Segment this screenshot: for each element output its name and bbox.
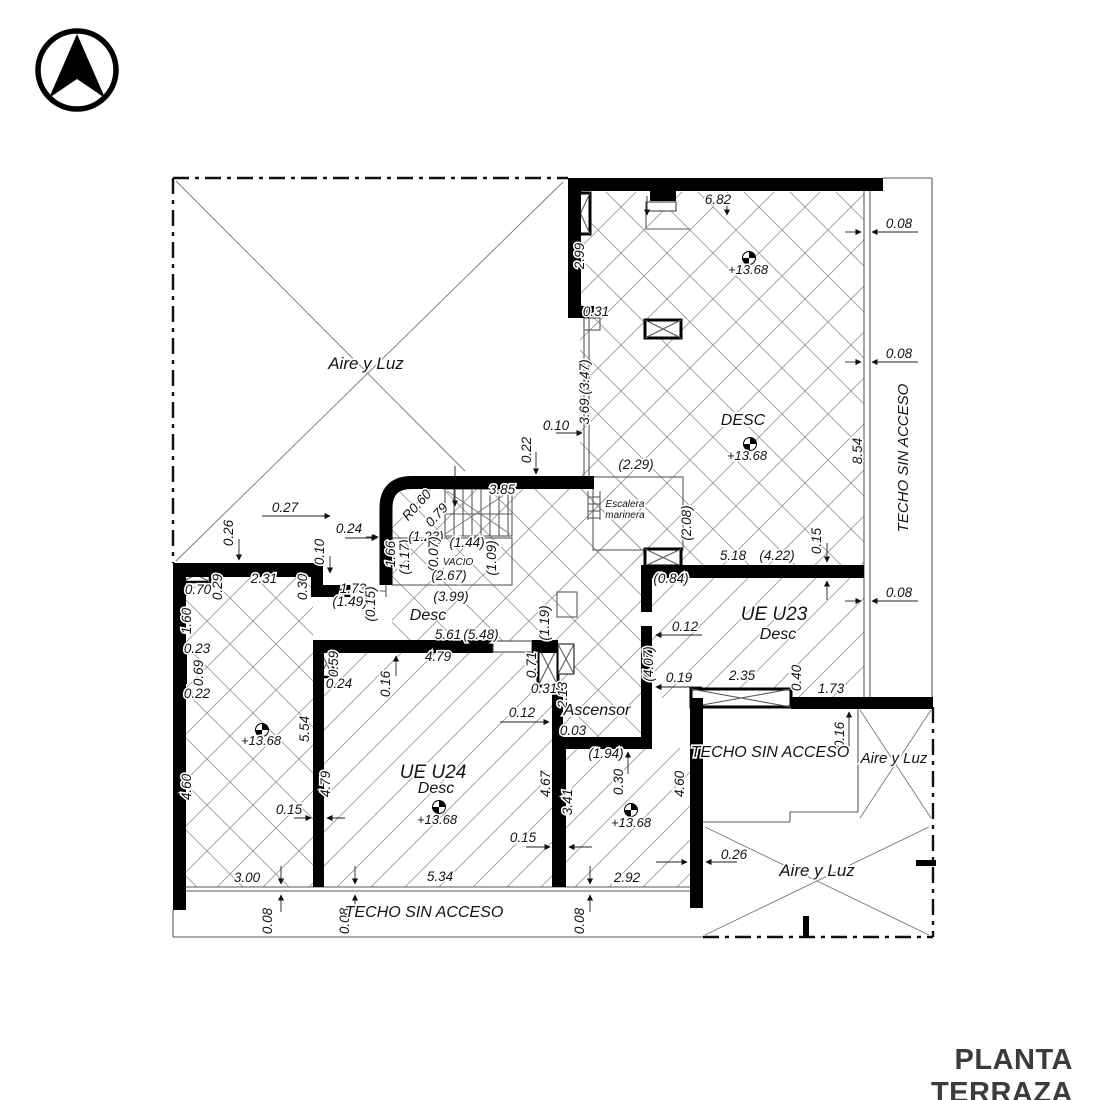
dimension-label: (0.15) <box>363 586 378 621</box>
dimension-label: 0.31 <box>531 681 557 696</box>
dimension-label: 0.26 <box>221 519 236 546</box>
dimension-label: 6.82 <box>705 192 732 207</box>
dimension-label: 0.31 <box>583 304 609 319</box>
room-label: Aire y Luz <box>327 354 404 373</box>
dimension-label: 3.41 <box>560 789 575 815</box>
dimension-label: 4.60 <box>179 773 194 800</box>
dimension-label: +13.68 <box>727 448 768 463</box>
window-box <box>645 320 681 338</box>
dimension-label: 0.03 <box>560 723 587 738</box>
room-label: Desc <box>760 626 796 643</box>
dimension-label: +13.68 <box>728 262 769 277</box>
room-label: VACIO <box>443 557 474 568</box>
room-label: UE U23 <box>741 604 808 625</box>
dimension-label: +13.68 <box>241 733 282 748</box>
dimension-label: (1.94) <box>588 746 623 761</box>
window-box-wide <box>691 689 791 707</box>
room-label: DESC <box>721 412 766 429</box>
dimension-label: (5.48) <box>463 627 498 642</box>
dimension-label: 0.22 <box>519 436 534 463</box>
dimension-label: 0.16 <box>378 670 393 697</box>
room-label: Aire y Luz <box>778 861 855 880</box>
dimension-label: 0.15 <box>510 830 537 845</box>
dimension-label: 5.61 <box>435 627 461 642</box>
dimension-label: 3.85 <box>489 482 516 497</box>
floor-plan: 6.820.080.080.082.990.313.69 (3.47)8.54(… <box>0 0 1100 1100</box>
room-label: Escalera <box>606 499 645 510</box>
hatch-zones <box>186 192 864 887</box>
dimension-label: (2.29) <box>618 457 653 472</box>
dimension-label: 0.24 <box>326 676 352 691</box>
dimension-label: 0.08 <box>260 907 275 934</box>
dimension-label: 2.31 <box>250 571 277 586</box>
dimension-label: 0.26 <box>721 847 748 862</box>
window-box <box>645 549 681 566</box>
drawing-sheet: 6.820.080.080.082.990.313.69 (3.47)8.54(… <box>0 0 1100 1100</box>
dimension-label: 0.08 <box>886 216 913 231</box>
room-label: TECHO SIN ACCESO <box>895 383 912 532</box>
dimension-label: 4.67 <box>538 770 553 797</box>
dimension-label: (1.09) <box>484 540 499 575</box>
dimension-label: +13.68 <box>417 812 458 827</box>
dimension-label: 0.15 <box>809 527 824 554</box>
dimension-label: 2.99 <box>572 242 587 270</box>
room-label: Ascensor <box>563 702 631 719</box>
dimension-label: 0.71 <box>524 652 539 678</box>
room-label: Desc <box>418 780 454 797</box>
dimension-label: (2.67) <box>431 568 466 583</box>
dimension-label: (0.84) <box>653 571 688 586</box>
dimension-label: 5.18 <box>720 548 747 563</box>
dimension-label: 4.60 <box>672 770 687 797</box>
window-box <box>558 644 574 674</box>
dimension-label: 0.23 <box>184 641 211 656</box>
room-label: Aire y Luz <box>860 750 928 767</box>
dimension-label: 0.29 <box>210 573 225 600</box>
room-label: TECHO SIN ACCESO <box>345 904 504 921</box>
room-label: marinera <box>605 510 645 521</box>
dimension-label: 1.66 <box>383 540 398 567</box>
dimension-label: 0.30 <box>611 768 626 795</box>
dimension-label: (2.08) <box>679 505 694 540</box>
dimension-label: 0.70 <box>185 582 212 597</box>
dimension-label: 0.10 <box>543 418 570 433</box>
dimension-label: 0.24 <box>336 521 362 536</box>
dimension-label: 4.79 <box>318 770 333 797</box>
dimension-label: 0.15 <box>276 802 303 817</box>
dimension-label: (1.17) <box>397 539 412 574</box>
room-label: TECHO SIN ACCESO <box>691 744 850 761</box>
dimension-label: 0.19 <box>666 670 693 685</box>
dimension-label: 3.69 (3.47) <box>577 359 592 424</box>
dimension-label: (4.07) <box>641 646 656 681</box>
dimension-label: 0.08 <box>886 585 913 600</box>
dimension-label: 0.69 <box>191 659 206 686</box>
dimension-label: 0.12 <box>672 619 699 634</box>
dimension-label: 0.22 <box>184 686 211 701</box>
dimension-label: +13.68 <box>611 815 652 830</box>
room-label: Desc <box>410 607 446 624</box>
dimension-label: 0.30 <box>295 573 310 600</box>
dimension-label: 2.92 <box>613 870 641 885</box>
dimension-label: 0.40 <box>789 664 804 691</box>
dimension-label: 3.00 <box>234 870 261 885</box>
drawing-title: PLANTA TERRAZA <box>848 1044 1073 1100</box>
dimension-label: (1.19) <box>537 605 552 640</box>
dimension-label: 0.59 <box>326 650 341 677</box>
dimension-label: (3.99) <box>433 589 468 604</box>
dimension-label: (4.22) <box>759 548 794 563</box>
dimension-label: 2.35 <box>728 668 756 683</box>
dimension-label: (1.44) <box>449 535 484 550</box>
dimension-label: 0.08 <box>572 907 587 934</box>
dimension-label: 8.54 <box>850 438 865 464</box>
dimension-label: 1.60 <box>179 607 194 634</box>
dimension-label: 0.08 <box>886 346 913 361</box>
dimension-label: 5.54 <box>297 716 312 742</box>
dimension-label: 4.79 <box>425 649 452 664</box>
north-compass-icon <box>38 31 116 109</box>
dimension-label: 5.34 <box>427 869 453 884</box>
dimension-label: 1.73 <box>818 681 845 696</box>
dimension-label: 0.27 <box>272 500 299 515</box>
dimension-label: (0.07) <box>426 536 441 571</box>
dimension-label: 0.10 <box>312 538 327 565</box>
dimension-label: 0.12 <box>509 705 536 720</box>
